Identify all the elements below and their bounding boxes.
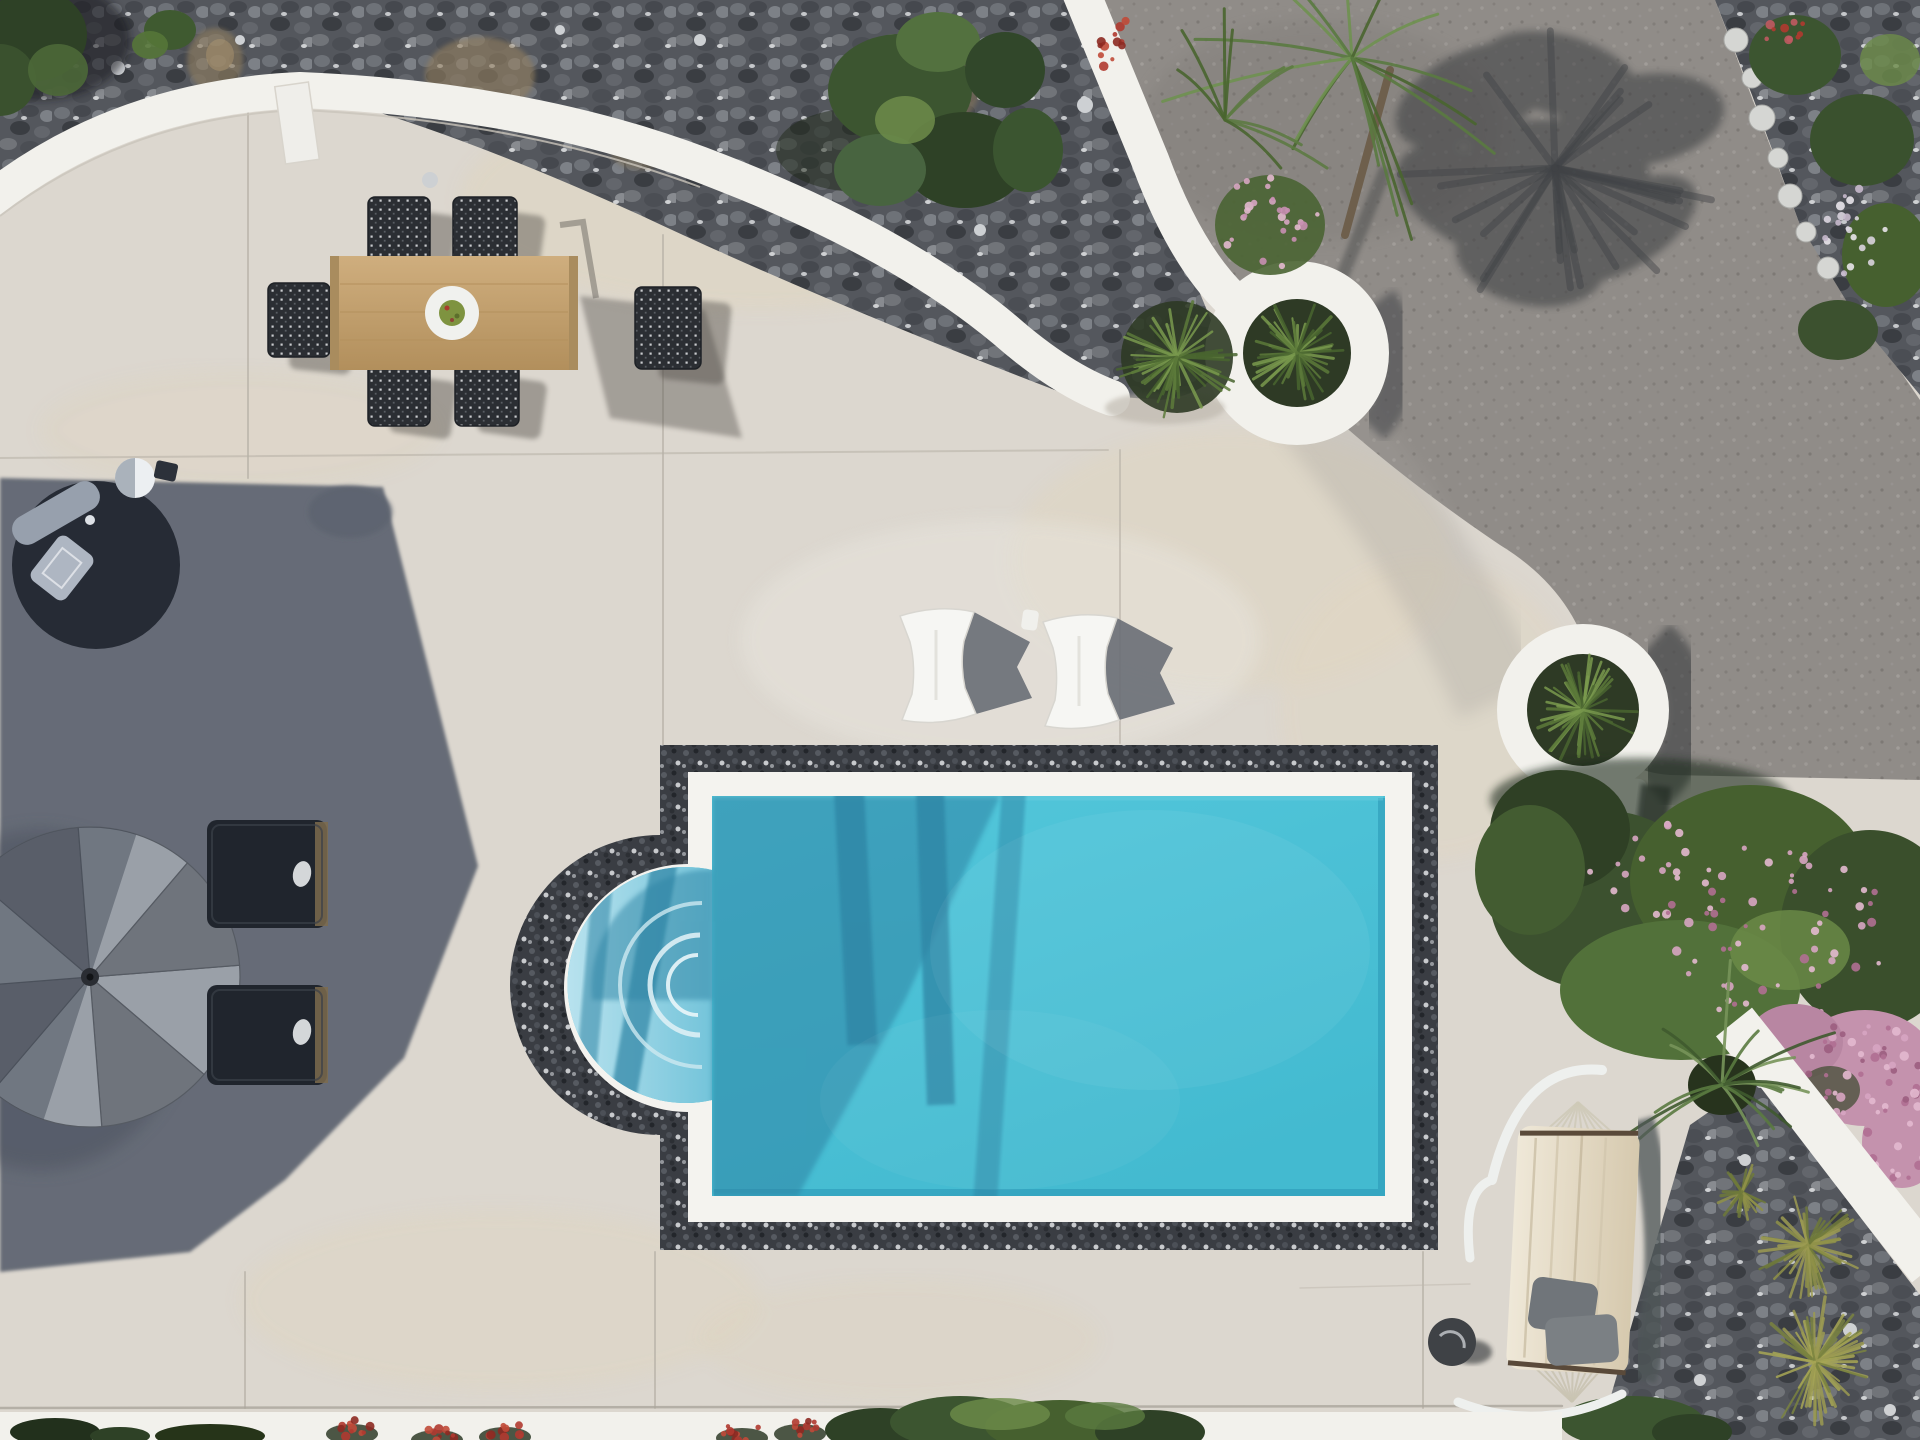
sun-lounger — [207, 985, 328, 1085]
villa-pool-scene — [0, 0, 1920, 1440]
aerial-photo — [0, 0, 1920, 1440]
small-cushion — [1021, 609, 1040, 631]
sun-lounger — [207, 820, 328, 928]
dining-table — [330, 256, 578, 370]
hammock-pillow — [1544, 1314, 1619, 1367]
